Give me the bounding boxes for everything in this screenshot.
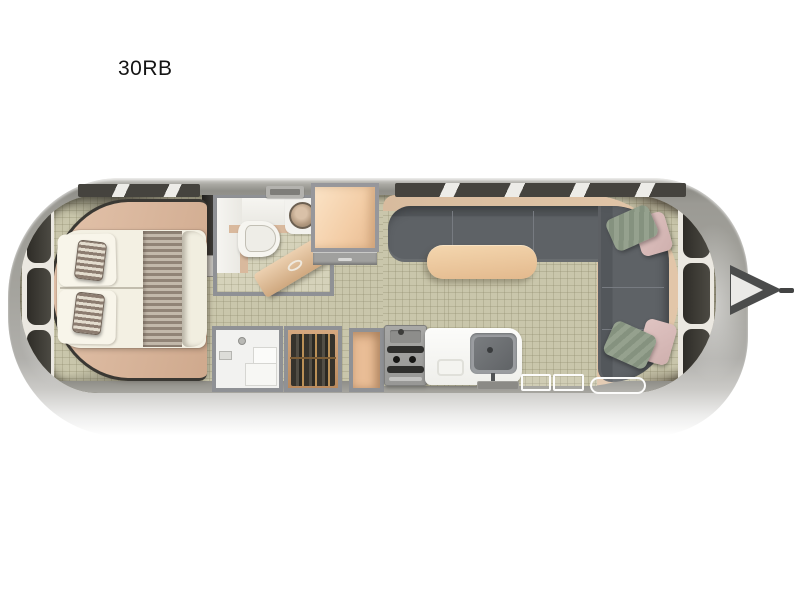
bedroom-window-band (78, 184, 200, 197)
front-window (683, 206, 710, 258)
entry-pad (590, 377, 646, 394)
dinette-table (427, 245, 537, 279)
two-burner-stove (384, 325, 427, 386)
shower-control (219, 351, 232, 360)
roof-vent-grille (270, 189, 300, 195)
rear-window (27, 205, 51, 263)
cutting-board (437, 359, 464, 376)
front-window-frame (678, 199, 714, 389)
roof-vent (266, 186, 304, 198)
floorplan-page: 30RB (0, 0, 800, 600)
striped-bed-runner (143, 231, 182, 347)
entry-step (553, 374, 584, 391)
toilet-lid (245, 225, 276, 252)
shower-bench (245, 363, 277, 386)
shower-drain (238, 337, 246, 345)
utility-tray (477, 381, 519, 390)
hanging-clothes (291, 334, 335, 386)
cushion-seam (602, 287, 664, 288)
toilet (238, 221, 280, 257)
shower-bench (253, 347, 277, 364)
sink-drain (487, 347, 493, 353)
burner (393, 356, 400, 363)
hanging-closet (284, 326, 342, 392)
sink-basin (474, 337, 513, 370)
striped-pillow (74, 239, 108, 281)
bed-foot-bolster (182, 231, 207, 347)
wardrobe-drawer (313, 252, 377, 265)
striped-pillow (72, 291, 106, 335)
front-wardrobe (311, 183, 379, 252)
stove-knob (398, 329, 404, 335)
front-window (683, 329, 710, 382)
stove-grate (387, 366, 424, 373)
stove-grate (387, 346, 424, 353)
shower (212, 326, 283, 392)
stove-tray (389, 377, 422, 381)
hitch-coupler-bar (779, 288, 794, 293)
rear-window (27, 330, 51, 386)
entry-step (521, 374, 551, 391)
plan-title: 30RB (118, 57, 173, 81)
kitchen-counter (425, 328, 522, 385)
lounge-window-band (395, 183, 686, 197)
kitchen-sink (470, 333, 517, 374)
trailer-body (8, 178, 748, 436)
burner (409, 356, 416, 363)
open-cabinet (349, 328, 384, 392)
front-window (683, 263, 710, 324)
rear-window-frame (22, 200, 54, 388)
door-handle (286, 258, 304, 274)
closet-rod (290, 357, 336, 359)
stove-control-panel (390, 330, 421, 343)
rear-window (27, 268, 51, 325)
drawer-handle (338, 258, 352, 261)
